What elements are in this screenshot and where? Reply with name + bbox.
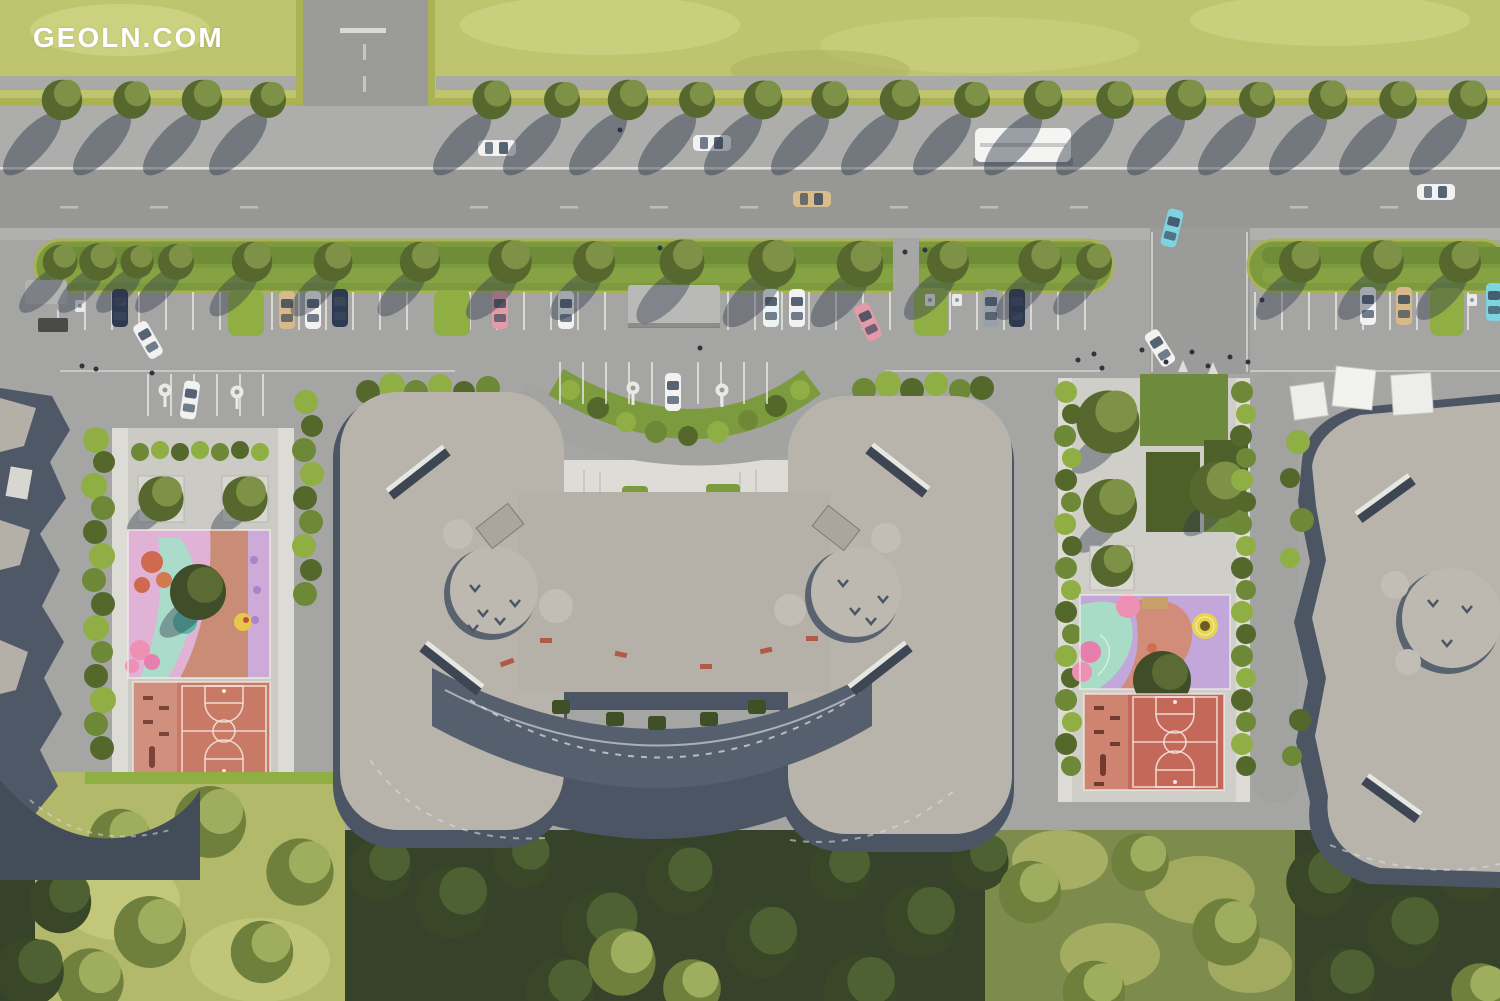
playground-left: [125, 530, 270, 678]
main-road: [0, 170, 1500, 240]
sport-court-right: [1084, 694, 1224, 790]
left-courtyard: [81, 374, 324, 784]
car-white: [1417, 184, 1455, 200]
handicap-icon: [952, 294, 962, 306]
right-courtyard: [1054, 374, 1256, 802]
sport-court-left: [133, 682, 270, 780]
masterplan-scene: [0, 0, 1500, 1001]
geoln-watermark: GEOLN.COM: [33, 22, 224, 54]
car-tan: [793, 191, 831, 207]
aerial-render-image: GEOLN.COM: [0, 0, 1500, 1001]
central-building: [333, 360, 1014, 852]
handicap-icon: [1467, 294, 1477, 306]
right-building: [1280, 366, 1500, 888]
